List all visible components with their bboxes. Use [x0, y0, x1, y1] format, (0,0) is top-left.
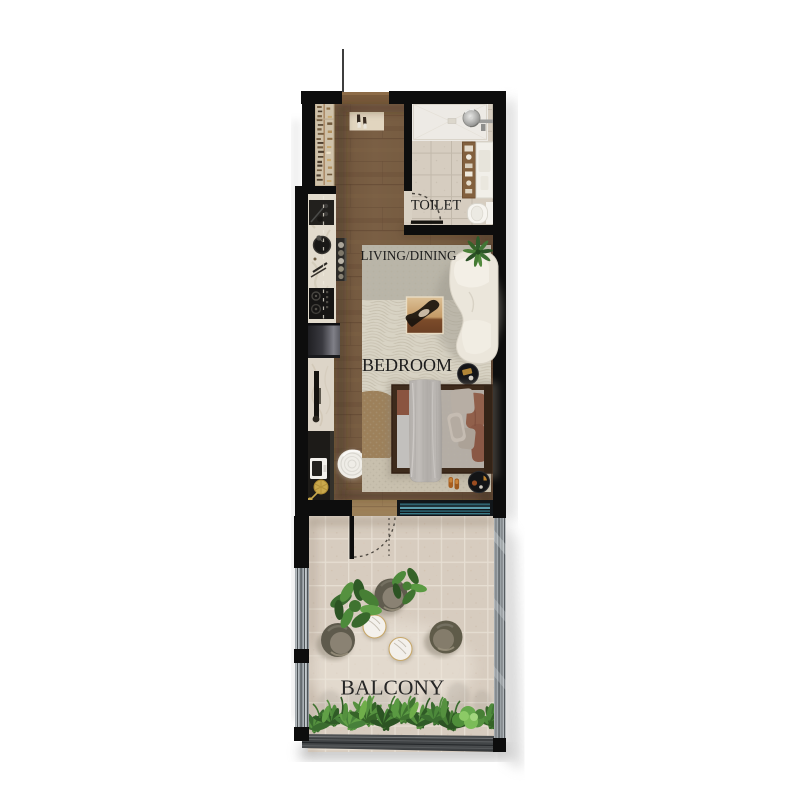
svg-text:LIVING/DINING: LIVING/DINING — [361, 248, 457, 263]
svg-text:TOILET: TOILET — [411, 198, 462, 214]
svg-text:BALCONY: BALCONY — [341, 676, 445, 700]
svg-text:BEDROOM: BEDROOM — [362, 355, 452, 375]
